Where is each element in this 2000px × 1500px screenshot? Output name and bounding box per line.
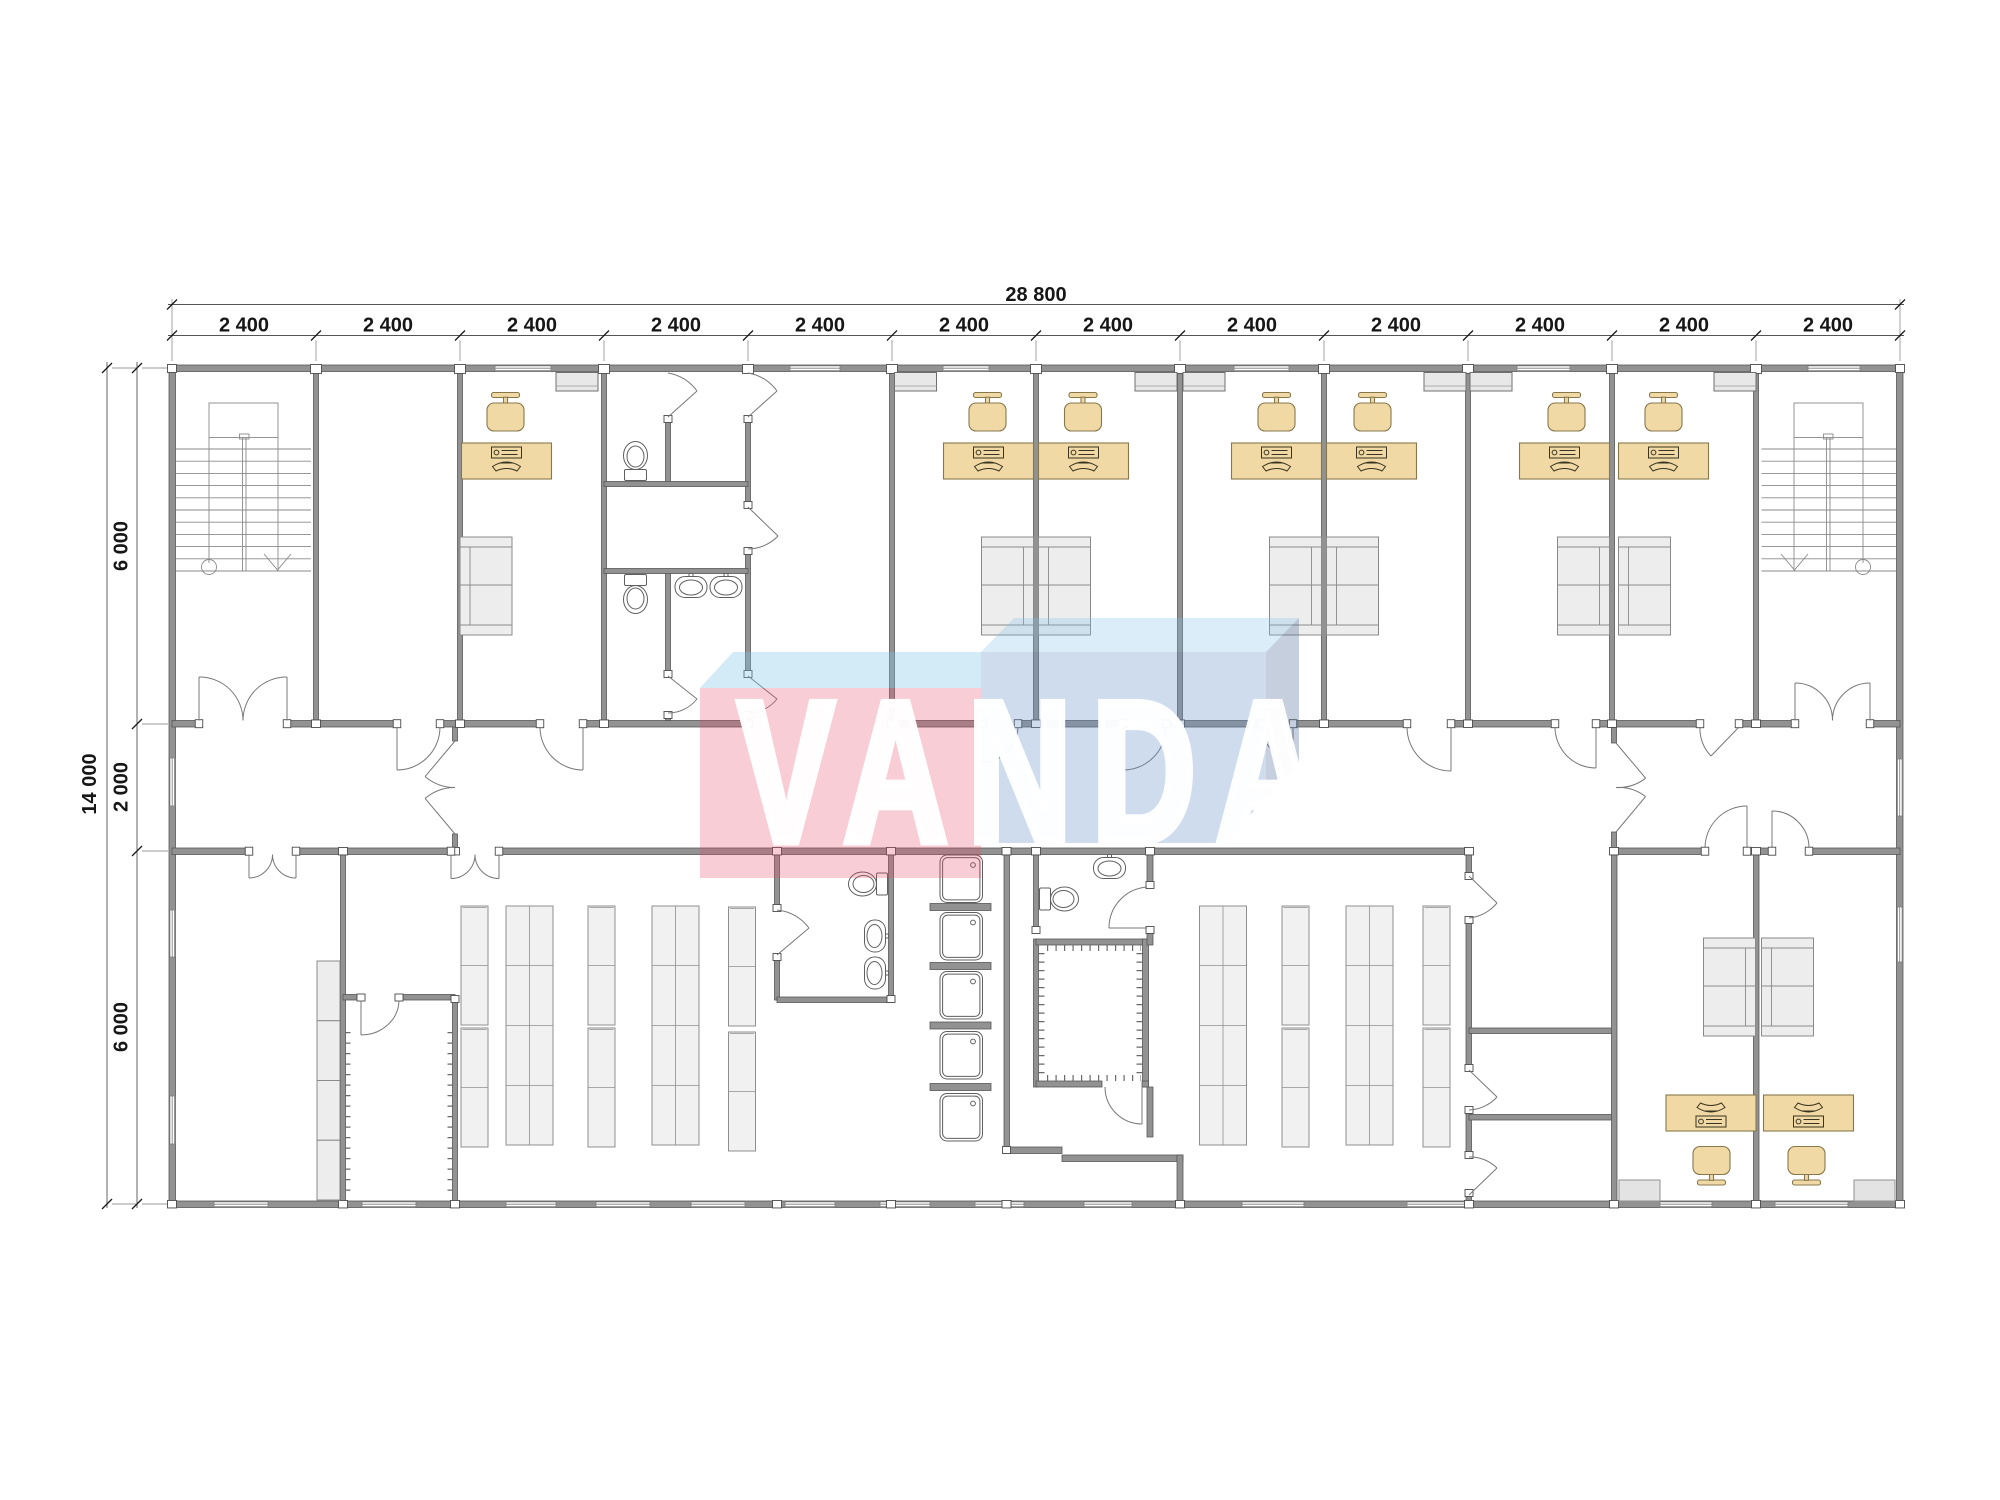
svg-text:2 400: 2 400	[795, 315, 845, 337]
svg-text:2 400: 2 400	[939, 315, 989, 337]
svg-text:2 400: 2 400	[363, 315, 413, 337]
svg-text:2 400: 2 400	[651, 315, 701, 337]
svg-text:2 400: 2 400	[1371, 315, 1421, 337]
svg-text:2 000: 2 000	[111, 762, 133, 812]
svg-text:2 400: 2 400	[1515, 315, 1565, 337]
svg-text:2 400: 2 400	[1083, 315, 1133, 337]
svg-text:2 400: 2 400	[507, 315, 557, 337]
svg-text:2 400: 2 400	[1227, 315, 1277, 337]
svg-text:14 000: 14 000	[79, 753, 101, 814]
svg-text:2 400: 2 400	[1659, 315, 1709, 337]
svg-text:28 800: 28 800	[1005, 284, 1066, 306]
svg-text:6 000: 6 000	[111, 1002, 133, 1052]
svg-text:VANDA: VANDA	[738, 660, 1340, 884]
svg-text:6 000: 6 000	[111, 521, 133, 571]
svg-text:2 400: 2 400	[1803, 315, 1853, 337]
svg-text:2 400: 2 400	[219, 315, 269, 337]
